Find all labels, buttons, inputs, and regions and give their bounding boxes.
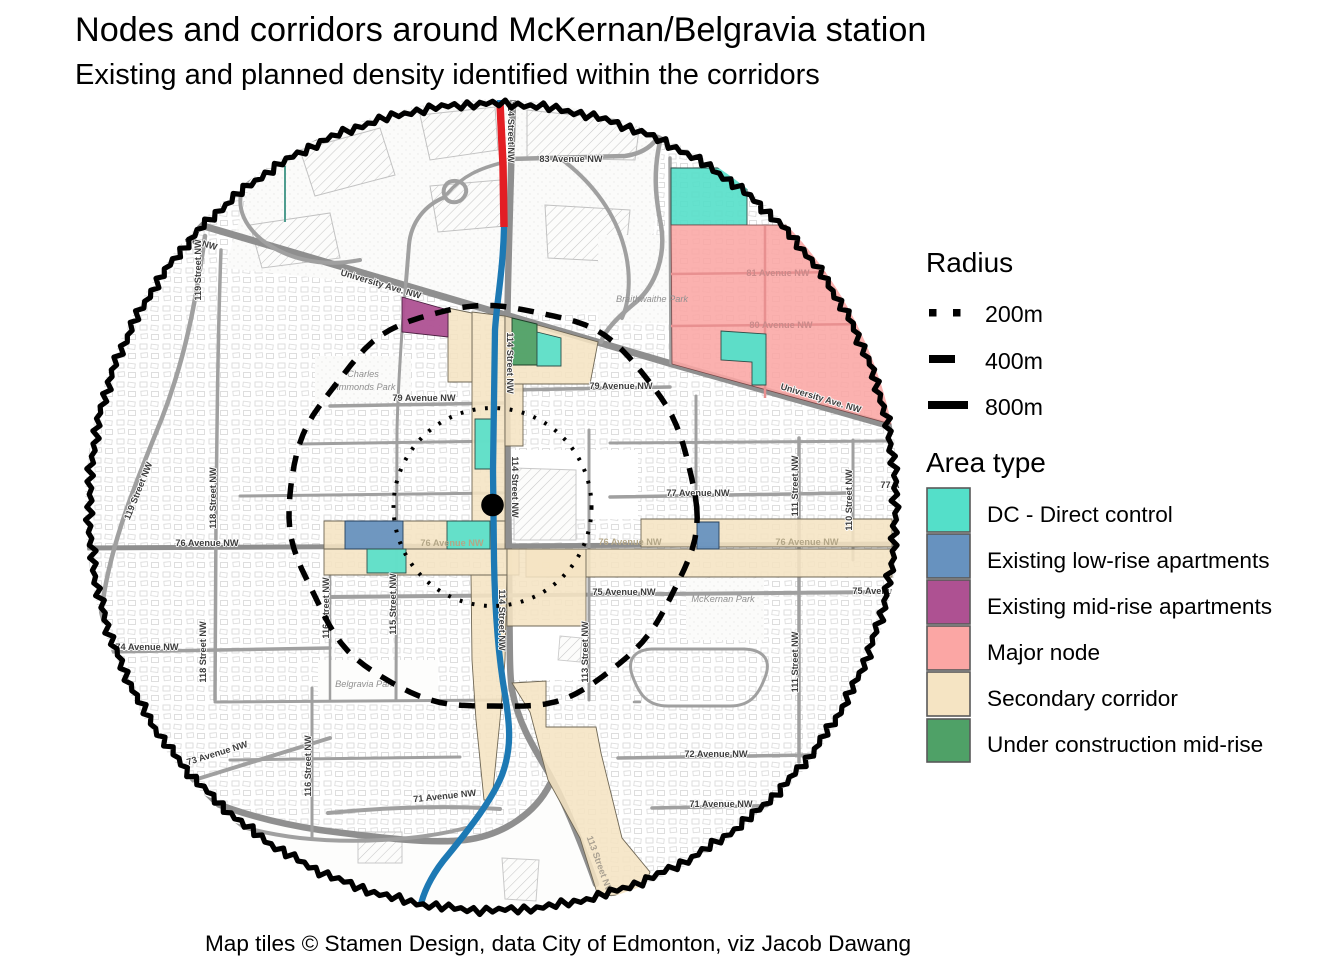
svg-text:83 Avenue NW: 83 Avenue NW: [539, 154, 602, 164]
svg-text:76 Avenue NW: 76 Avenue NW: [775, 537, 838, 547]
svg-text:McKernan Park: McKernan Park: [691, 594, 755, 604]
svg-text:Charles: Charles: [347, 369, 379, 379]
svg-text:111 Street NW: 111 Street NW: [790, 455, 800, 516]
svg-text:800m: 800m: [985, 394, 1043, 420]
svg-text:Existing mid-rise apartments: Existing mid-rise apartments: [987, 594, 1272, 619]
svg-text:Nodes and corridors around McK: Nodes and corridors around McKernan/Belg…: [75, 11, 926, 49]
svg-text:400m: 400m: [985, 348, 1043, 374]
svg-text:118 Street NW: 118 Street NW: [198, 621, 208, 683]
svg-text:115 Street NW: 115 Street NW: [388, 573, 398, 635]
svg-text:Radius: Radius: [926, 247, 1013, 278]
svg-text:119 Street NW: 119 Street NW: [193, 239, 203, 301]
svg-text:77 Avenue NW: 77 Avenue NW: [666, 488, 729, 498]
svg-text:Existing low-rise apartments: Existing low-rise apartments: [987, 548, 1270, 573]
svg-text:76 Avenue NW: 76 Avenue NW: [420, 538, 483, 548]
svg-text:76 Avenue NW: 76 Avenue NW: [598, 537, 661, 547]
svg-text:200m: 200m: [985, 301, 1043, 327]
svg-text:75 Avenue NW: 75 Avenue NW: [592, 587, 655, 597]
svg-text:Area type: Area type: [926, 447, 1046, 478]
svg-text:116 Street NW: 116 Street NW: [303, 735, 313, 797]
svg-text:DC - Direct control: DC - Direct control: [987, 502, 1173, 527]
svg-text:74 Avenue NW: 74 Avenue NW: [115, 642, 178, 652]
svg-text:Existing and planned density i: Existing and planned density identified …: [75, 59, 820, 91]
svg-text:118 Street NW: 118 Street NW: [208, 467, 218, 529]
svg-text:113 Street NW: 113 Street NW: [580, 621, 590, 683]
svg-text:114 Street NW: 114 Street NW: [497, 589, 507, 651]
svg-text:111 Street NW: 111 Street NW: [790, 631, 800, 692]
svg-text:Simmonds Park: Simmonds Park: [331, 382, 396, 392]
svg-text:114 Street NW: 114 Street NW: [510, 456, 520, 518]
svg-text:76 Avenue NW: 76 Avenue NW: [175, 538, 238, 548]
svg-text:72 Avenue NW: 72 Avenue NW: [684, 749, 747, 759]
svg-text:80 Avenue NW: 80 Avenue NW: [749, 320, 812, 330]
svg-text:Under construction mid-rise: Under construction mid-rise: [987, 732, 1263, 757]
svg-text:81 Avenue NW: 81 Avenue NW: [746, 268, 809, 278]
svg-text:114 Street NW: 114 Street NW: [505, 332, 515, 394]
svg-text:Braithwaithe Park: Braithwaithe Park: [616, 294, 688, 304]
svg-text:Secondary corridor: Secondary corridor: [987, 686, 1178, 711]
svg-text:Major node: Major node: [987, 640, 1100, 665]
svg-text:79 Avenue NW: 79 Avenue NW: [589, 381, 652, 391]
svg-text:71 Avenue NW: 71 Avenue NW: [689, 799, 752, 809]
svg-text:79 Avenue NW: 79 Avenue NW: [392, 393, 455, 403]
svg-text:110 Street NW: 110 Street NW: [844, 469, 854, 531]
svg-text:Map tiles © Stamen Design, dat: Map tiles © Stamen Design, data City of …: [205, 931, 911, 956]
